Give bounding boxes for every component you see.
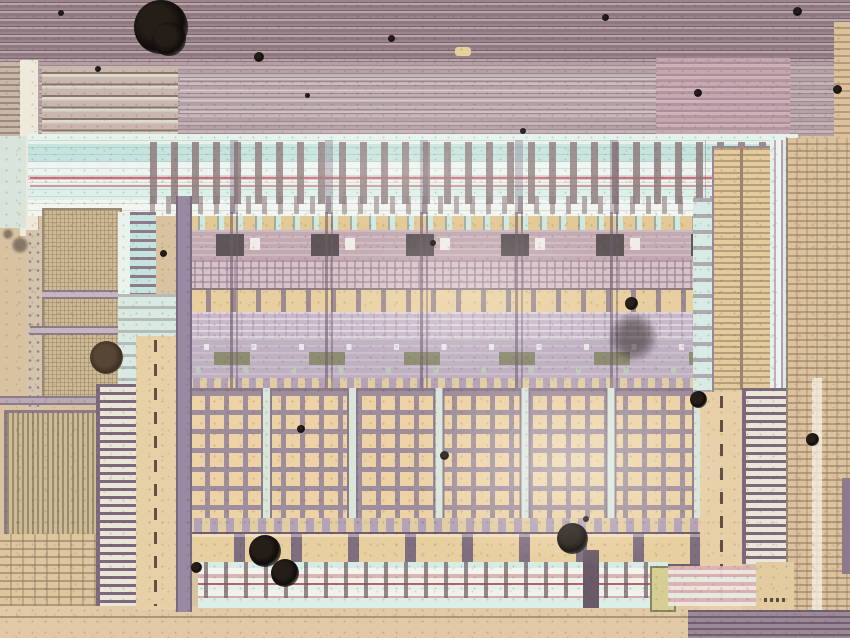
dust-blob — [833, 85, 842, 94]
dust-blob — [430, 240, 436, 246]
dust-blob — [58, 10, 64, 16]
dust-blob — [520, 128, 526, 134]
dust-blob — [90, 341, 123, 374]
dust-blob — [610, 314, 656, 360]
dust-blob — [583, 516, 589, 522]
dust-blob — [793, 7, 802, 16]
dust-blob — [152, 22, 186, 56]
dust-blob — [271, 559, 299, 587]
dust-blob — [694, 89, 702, 97]
dust-layer — [0, 0, 850, 638]
ic-die-photograph — [0, 0, 850, 638]
dust-blob — [3, 229, 13, 239]
dust-blob — [690, 391, 707, 408]
dust-blob — [557, 523, 588, 554]
dust-blob — [806, 433, 819, 446]
dust-blob — [625, 297, 638, 310]
dust-blob — [191, 562, 202, 573]
dust-blob — [305, 93, 310, 98]
dust-blob — [95, 66, 101, 72]
dust-blob — [602, 14, 609, 21]
dust-blob — [12, 237, 28, 253]
dust-blob — [297, 425, 305, 433]
dust-blob — [440, 451, 449, 460]
dust-blob — [160, 250, 167, 257]
dust-blob — [254, 52, 264, 62]
dust-blob — [388, 35, 395, 42]
